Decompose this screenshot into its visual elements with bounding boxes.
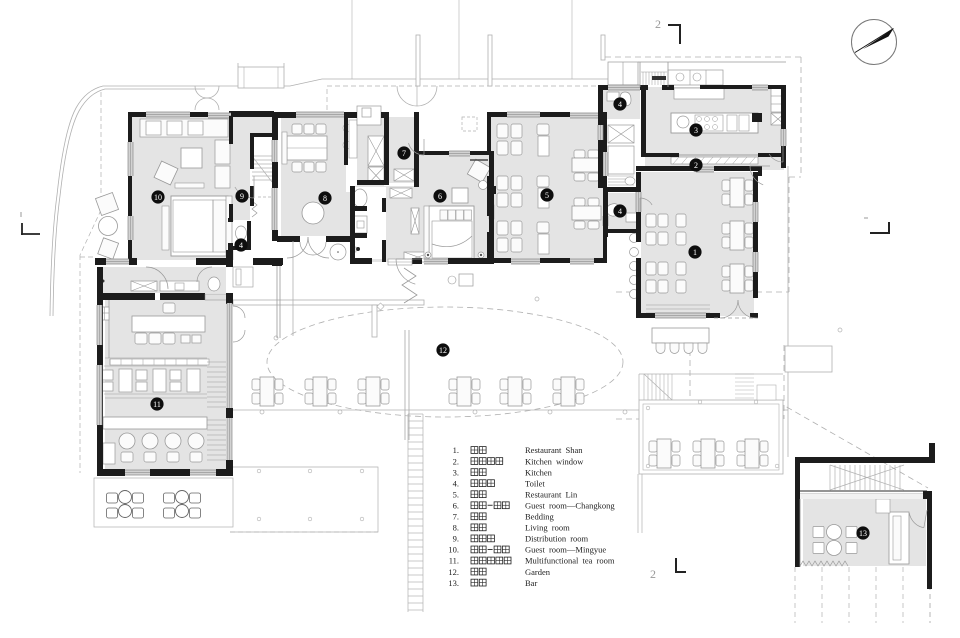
svg-text:Multifunctional tea room: Multifunctional tea room <box>525 556 615 566</box>
svg-text:5: 5 <box>545 191 549 200</box>
svg-text:Restaurant Shan: Restaurant Shan <box>525 445 583 455</box>
svg-text:9.: 9. <box>453 534 459 544</box>
svg-text:Distribution room: Distribution room <box>525 534 589 544</box>
svg-text:4: 4 <box>239 241 243 250</box>
svg-text:9: 9 <box>240 192 244 201</box>
svg-text:Guest room—Changkong: Guest room—Changkong <box>525 500 615 510</box>
svg-text:12.: 12. <box>448 567 459 577</box>
svg-text:6.: 6. <box>453 500 459 510</box>
svg-text:4: 4 <box>618 207 622 216</box>
svg-text:10: 10 <box>154 193 162 202</box>
svg-text:4.: 4. <box>453 478 459 488</box>
svg-text:1.: 1. <box>453 445 459 455</box>
svg-text:2: 2 <box>694 161 698 170</box>
svg-text:2: 2 <box>655 17 661 31</box>
svg-text:6: 6 <box>438 192 442 201</box>
svg-text:5.: 5. <box>453 489 459 499</box>
svg-text:Kitchen: Kitchen <box>525 467 553 477</box>
svg-text:11.: 11. <box>449 556 459 566</box>
svg-text:3.: 3. <box>453 467 459 477</box>
svg-text:2.: 2. <box>453 456 459 466</box>
svg-text:1: 1 <box>693 248 697 257</box>
svg-text:8: 8 <box>323 194 327 203</box>
svg-text:Toilet: Toilet <box>525 478 545 488</box>
svg-text:Garden: Garden <box>525 567 551 577</box>
svg-text:11: 11 <box>153 400 161 409</box>
svg-text:8.: 8. <box>453 523 459 533</box>
svg-text:Living room: Living room <box>525 523 570 533</box>
svg-text:13: 13 <box>859 529 867 538</box>
svg-text:7: 7 <box>402 149 406 158</box>
svg-text:2: 2 <box>650 567 656 581</box>
svg-text:7.: 7. <box>453 512 459 522</box>
svg-text:Guest room—Mingyue: Guest room—Mingyue <box>525 545 606 555</box>
svg-text:3: 3 <box>694 126 698 135</box>
svg-text:Restaurant Lin: Restaurant Lin <box>525 489 578 499</box>
svg-text:Bedding: Bedding <box>525 512 555 522</box>
svg-text:Bar: Bar <box>525 578 537 588</box>
svg-text:12: 12 <box>439 346 447 355</box>
svg-text:13.: 13. <box>448 578 459 588</box>
svg-text:4: 4 <box>618 100 622 109</box>
svg-text:10.: 10. <box>448 545 459 555</box>
svg-text:Kitchen window: Kitchen window <box>525 456 584 466</box>
